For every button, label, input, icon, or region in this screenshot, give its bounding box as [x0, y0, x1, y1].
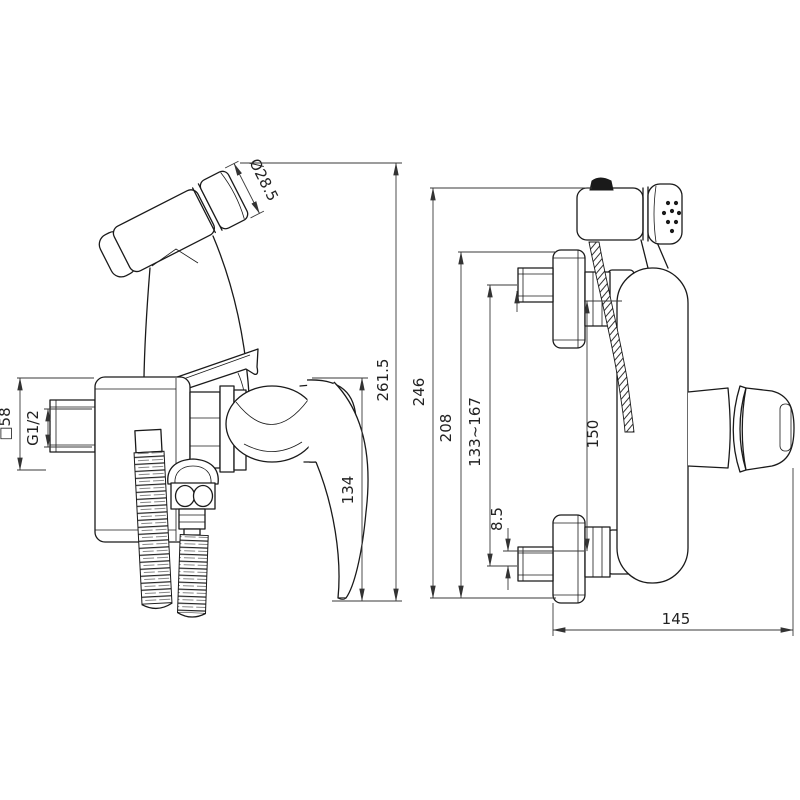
dim-bracket-height: 208	[437, 252, 556, 598]
front-view: 246 208 133~167 8.5 150	[410, 178, 794, 636]
dim-label-overall-height-front: 246	[410, 378, 428, 407]
sprayer-head: Ø28.5	[93, 151, 284, 285]
inlet-pipe	[50, 400, 95, 452]
lower-inlet-pipe	[518, 547, 553, 581]
dim-label-nut-span: 150	[584, 420, 602, 449]
shower-hose-right	[177, 535, 208, 618]
upper-bracket	[553, 250, 585, 348]
upper-inlet-pipe	[517, 268, 553, 312]
technical-drawing: Ø28.5	[0, 0, 800, 800]
dim-label-inlet-span: 133~167	[466, 397, 484, 467]
dim-label-handle-height: 134	[339, 476, 357, 505]
dim-label-eccentric-offset: 8.5	[488, 507, 506, 531]
dim-label-inlet-thread: G1/2	[24, 410, 42, 446]
dim-label-depth: 145	[662, 610, 691, 628]
dim-label-flange-square: □58	[0, 407, 14, 440]
dim-label-overall-height-side: 261.5	[374, 359, 392, 402]
holder-clip	[590, 178, 613, 190]
side-view: Ø28.5	[0, 151, 402, 618]
lower-bracket	[553, 515, 585, 603]
dim-label-bracket-height: 208	[437, 414, 455, 443]
front-lever-handle	[688, 386, 794, 472]
drawing-page: Ø28.5	[0, 0, 800, 800]
